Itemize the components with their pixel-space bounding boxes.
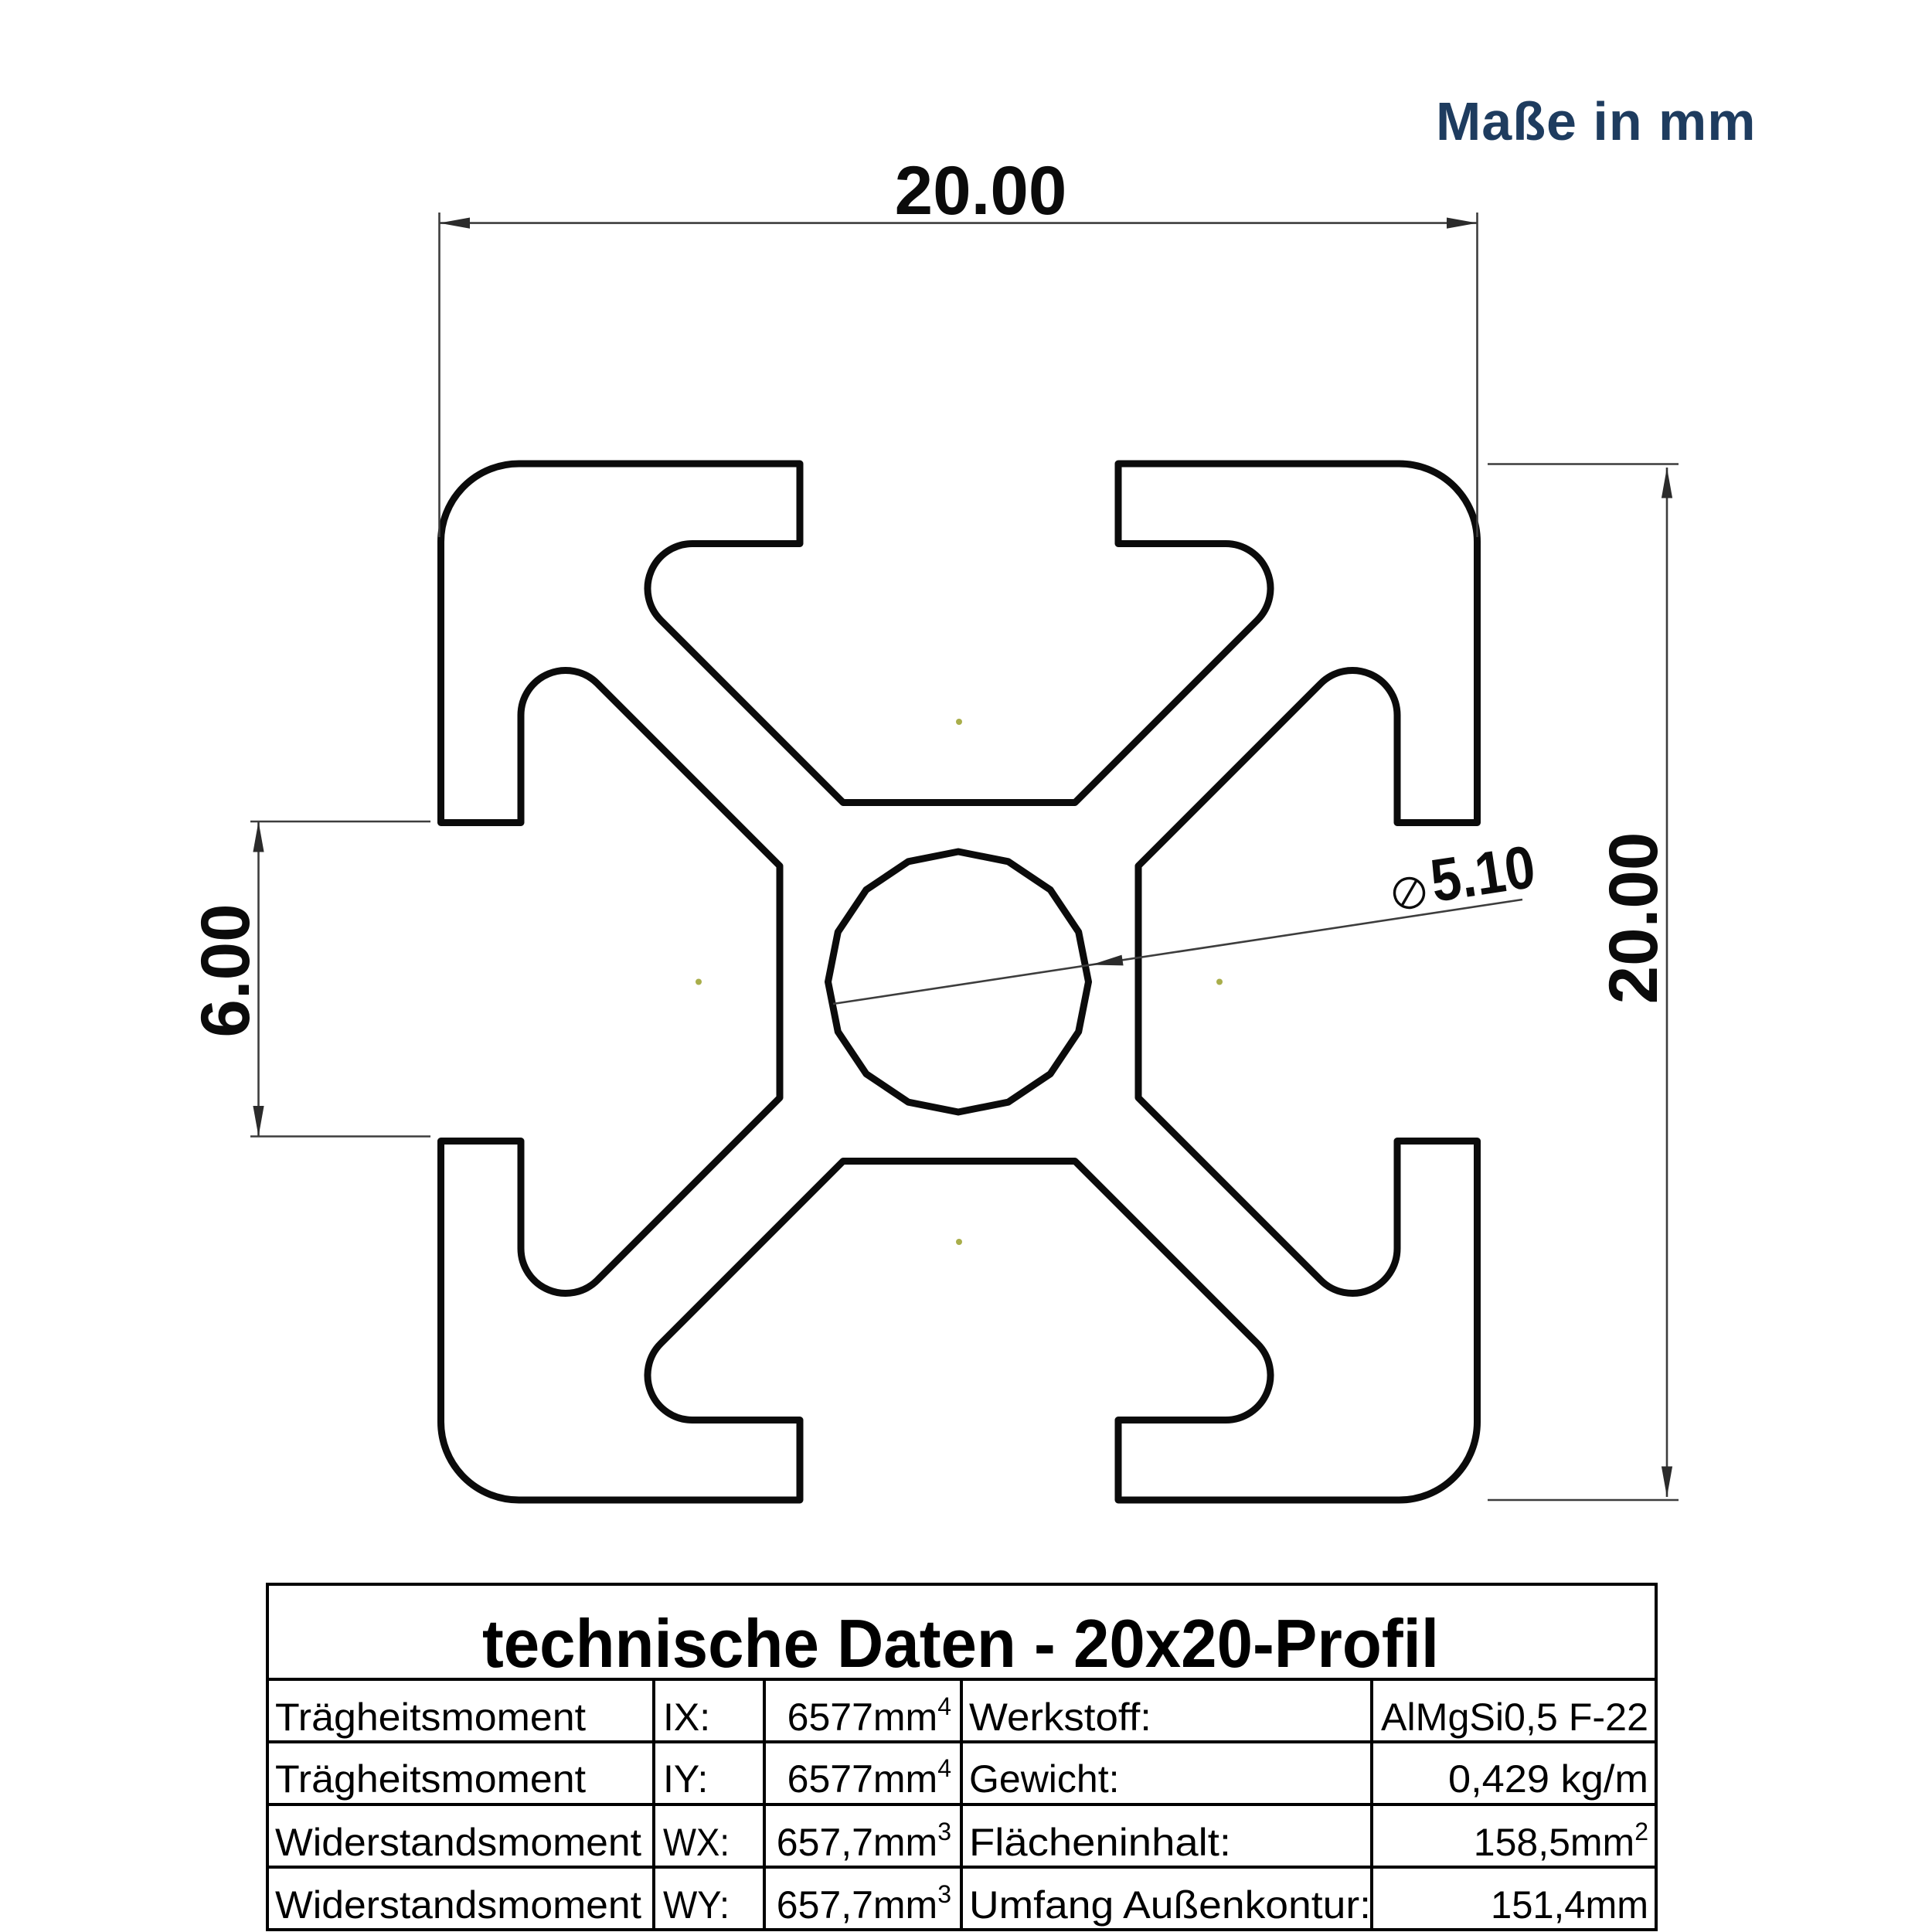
svg-text:158,5mm2: 158,5mm2: [1474, 1818, 1648, 1864]
svg-text:Flächeninhalt:: Flächeninhalt:: [969, 1821, 1231, 1864]
svg-text:Widerstandsmoment: Widerstandsmoment: [275, 1821, 641, 1864]
svg-text:20.00: 20.00: [1594, 832, 1672, 1005]
svg-text:WY:: WY:: [663, 1883, 730, 1927]
svg-text:0,429 kg/m: 0,429 kg/m: [1448, 1757, 1648, 1801]
svg-text:technische Daten - 20x20-Profi: technische Daten - 20x20-Profil: [482, 1605, 1439, 1682]
svg-text:Maße in mm: Maße in mm: [1436, 91, 1757, 151]
svg-text:IX:: IX:: [663, 1696, 710, 1739]
svg-text:AlMgSi0,5 F-22: AlMgSi0,5 F-22: [1381, 1696, 1648, 1739]
svg-text:Werkstoff:: Werkstoff:: [969, 1696, 1151, 1739]
svg-text:657,7mm3: 657,7mm3: [777, 1880, 951, 1927]
svg-text:Widerstandsmoment: Widerstandsmoment: [275, 1883, 641, 1927]
svg-text:6.00: 6.00: [186, 903, 264, 1037]
svg-text:WX:: WX:: [663, 1821, 730, 1864]
svg-text:Trägheitsmoment: Trägheitsmoment: [275, 1696, 586, 1739]
svg-text:6577mm4: 6577mm4: [787, 1692, 951, 1739]
svg-text:IY:: IY:: [663, 1757, 708, 1801]
svg-text:Trägheitsmoment: Trägheitsmoment: [275, 1757, 586, 1801]
svg-text:Umfang Außenkontur:: Umfang Außenkontur:: [969, 1883, 1371, 1927]
svg-text:151,4mm: 151,4mm: [1491, 1883, 1648, 1927]
svg-text:657,7mm3: 657,7mm3: [777, 1818, 951, 1864]
svg-text:20.00: 20.00: [895, 151, 1067, 229]
svg-text:6577mm4: 6577mm4: [787, 1754, 951, 1801]
svg-text:Gewicht:: Gewicht:: [969, 1757, 1120, 1801]
